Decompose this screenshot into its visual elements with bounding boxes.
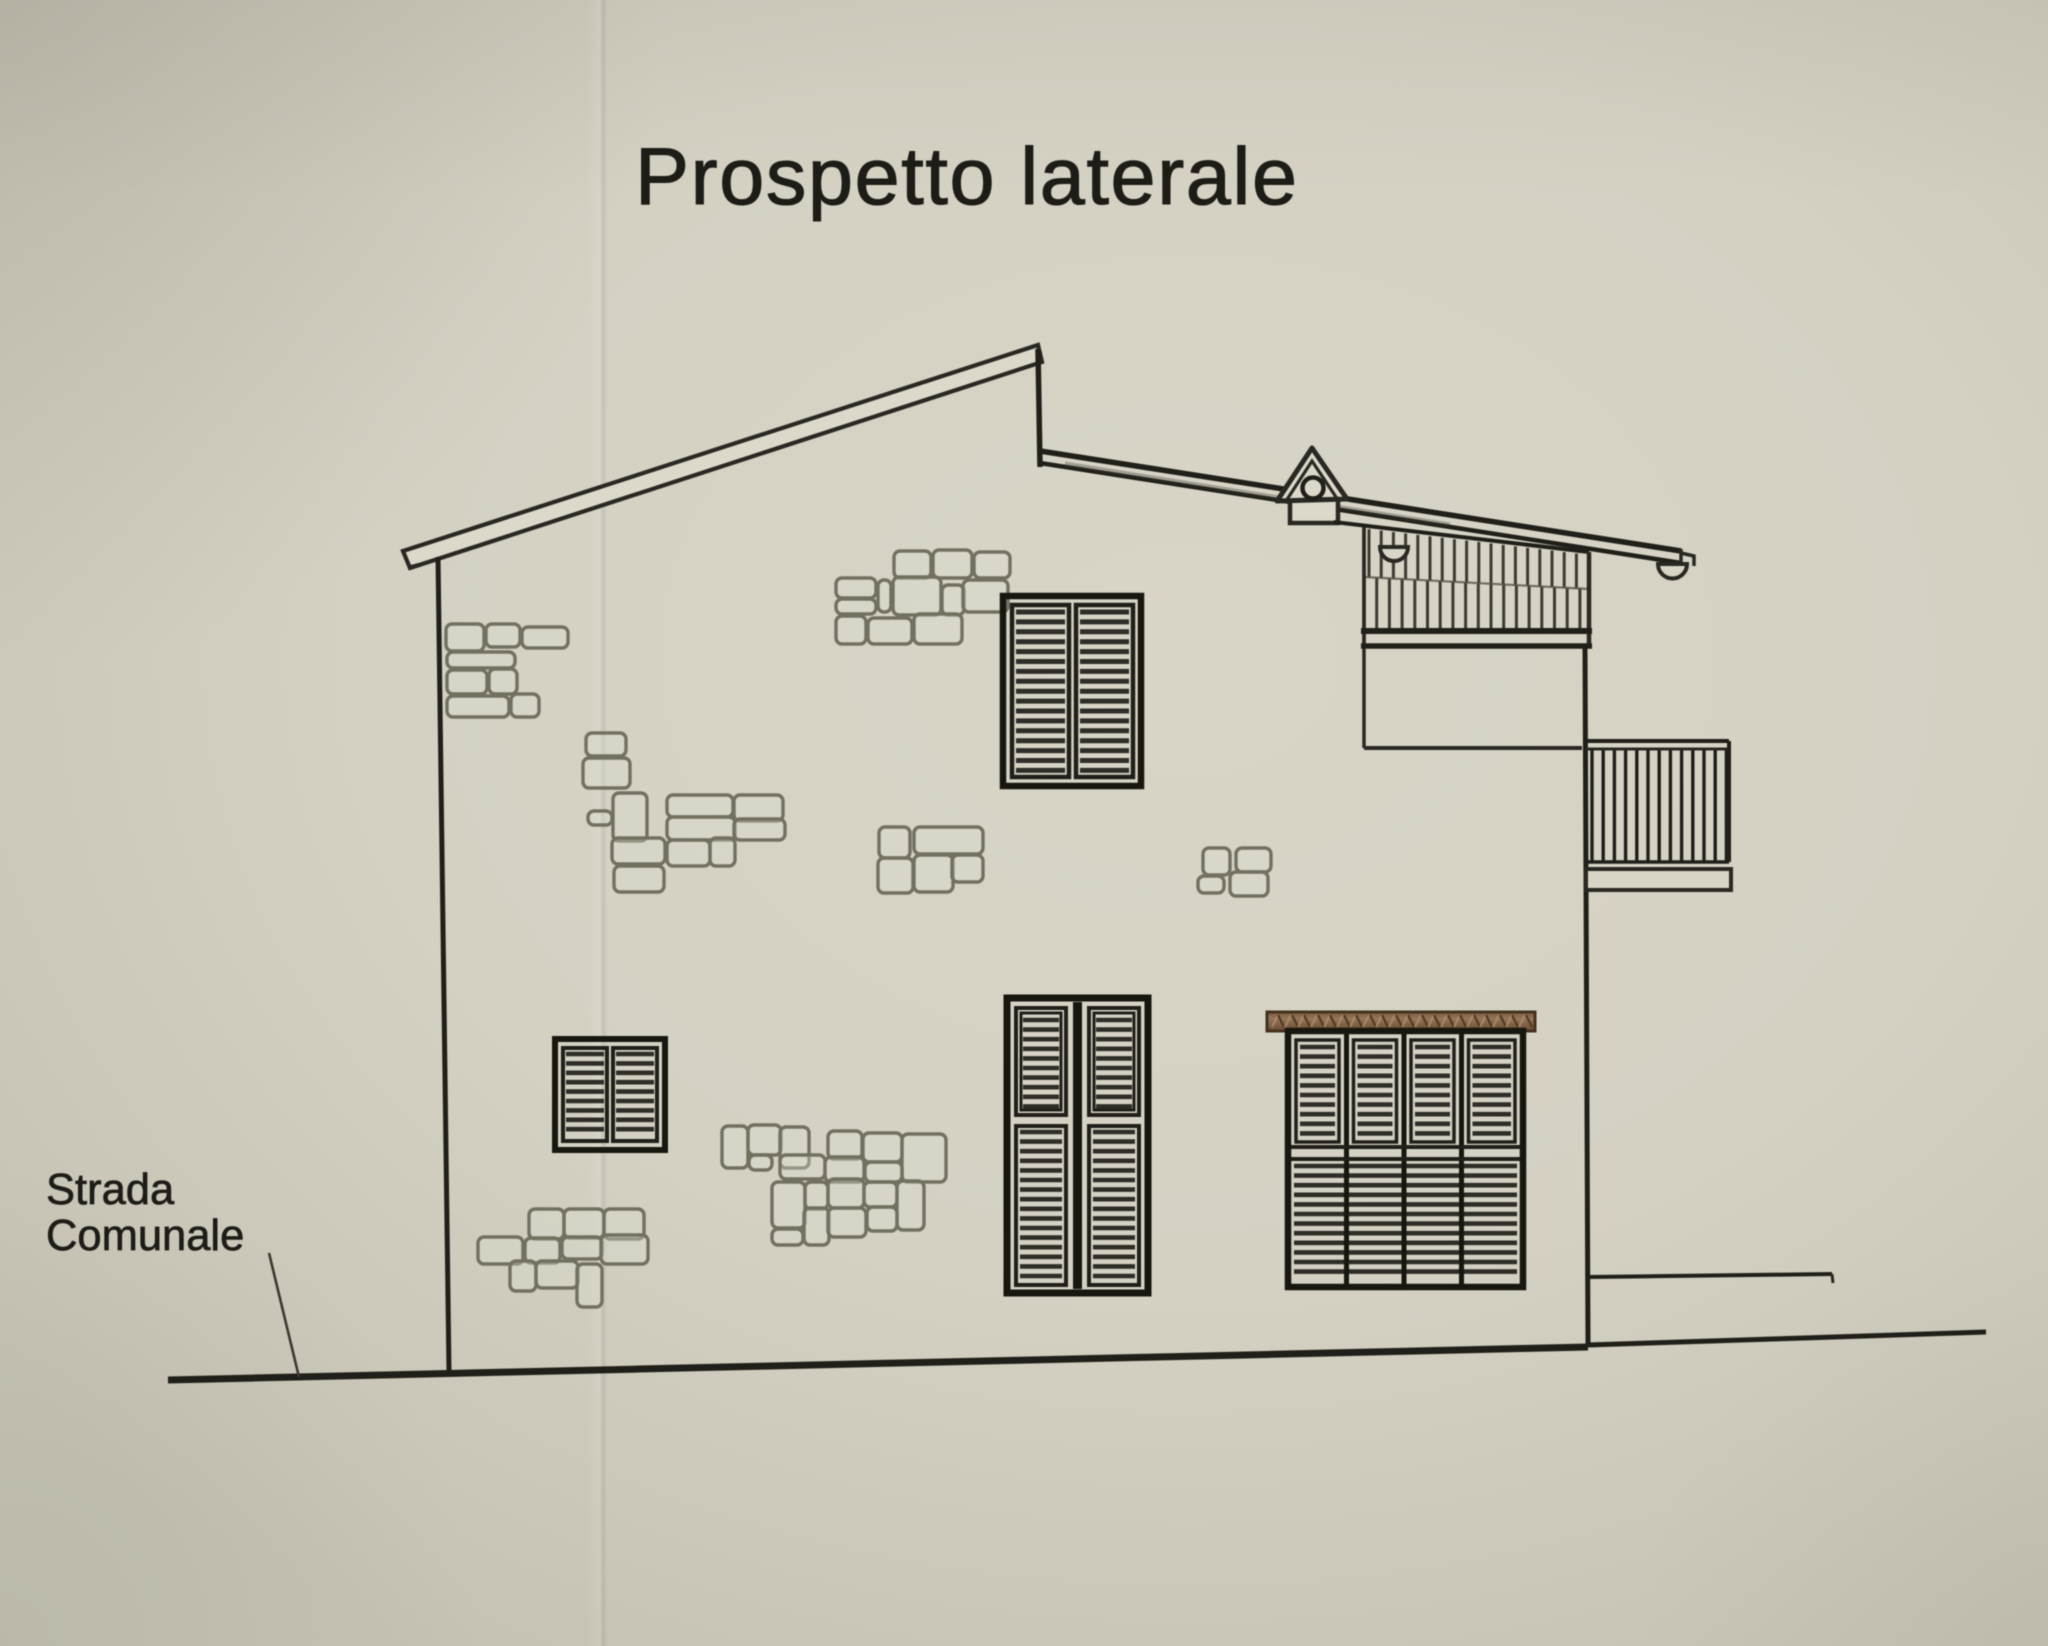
svg-text:Strada: Strada <box>46 1166 175 1214</box>
svg-text:Comunale: Comunale <box>46 1212 244 1260</box>
svg-text:Prospetto laterale: Prospetto laterale <box>635 132 1299 222</box>
